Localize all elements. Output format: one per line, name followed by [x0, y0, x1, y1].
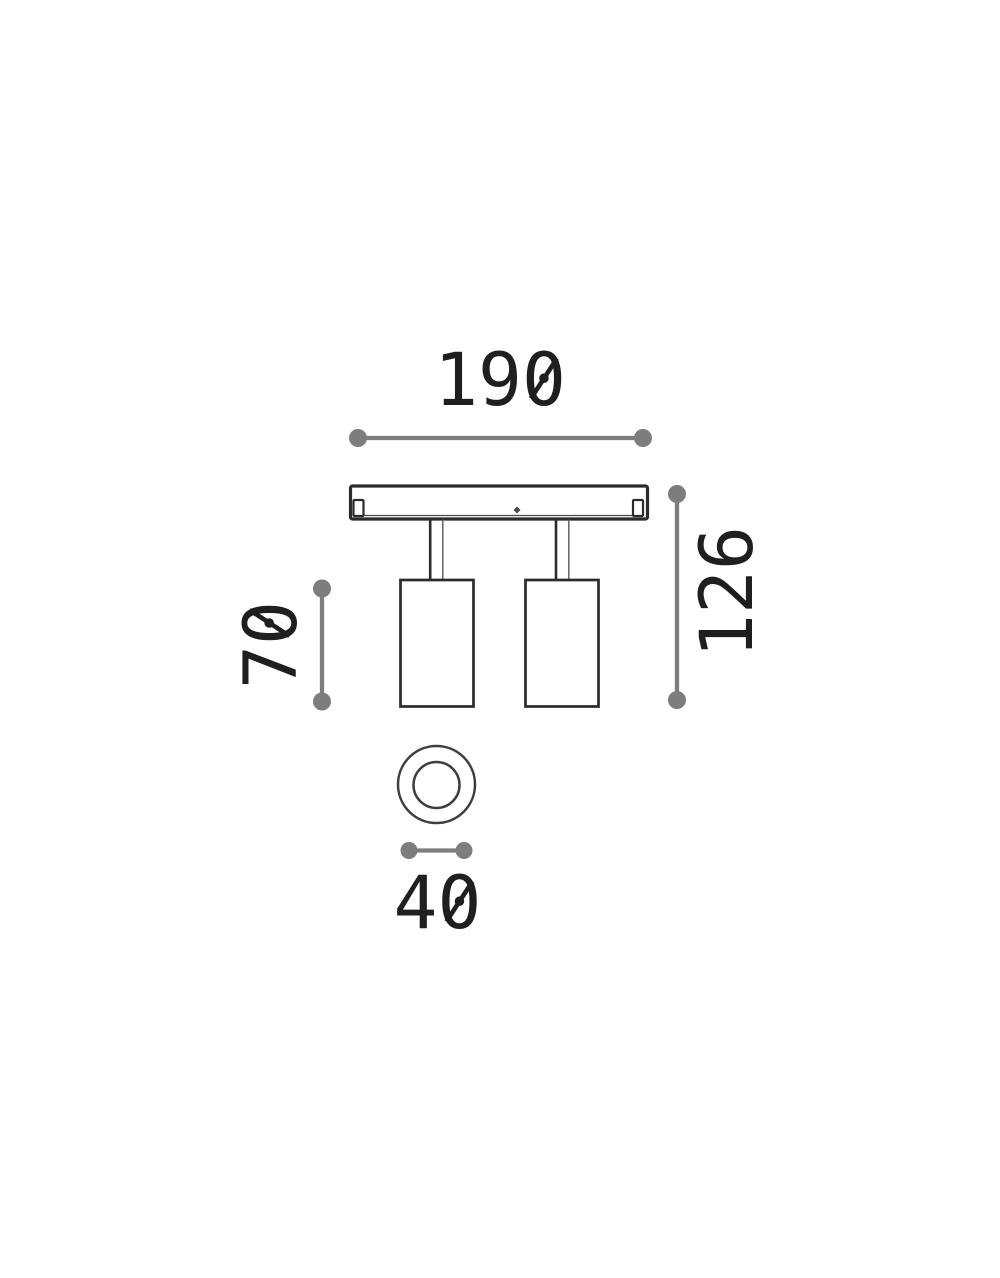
body-height-dimension-dot-top — [313, 580, 331, 598]
body-height-dimension: 70 — [229, 580, 331, 711]
width-dimension-dot-right — [634, 429, 652, 447]
canopy-left-bracket — [354, 500, 364, 516]
overall-height-dimension: 126 — [668, 485, 770, 709]
drawing-canvas: 190 — [0, 0, 1000, 1278]
head-diameter-dimension-dot-right — [456, 842, 473, 859]
canopy-bar — [351, 486, 648, 519]
body-height-dimension-dot-bottom — [313, 693, 331, 711]
fixture-front-view — [351, 486, 648, 707]
dimension-diagram: 190 — [0, 0, 1000, 1278]
body-height-label-group: 70 — [229, 601, 314, 689]
overall-height-dimension-dot-bottom — [668, 691, 686, 709]
right-spotlight-body — [526, 580, 599, 707]
left-spotlight-body — [401, 580, 474, 707]
body-height-dimension-label: 70 — [229, 601, 314, 689]
bottom-view-outer-circle — [398, 746, 475, 823]
width-dimension: 190 — [349, 338, 652, 447]
bottom-view-inner-circle — [414, 762, 460, 808]
head-diameter-dimension: 40 — [394, 842, 482, 946]
canopy-right-bracket — [633, 500, 643, 516]
head-diameter-dimension-label: 40 — [394, 861, 482, 946]
left-stem — [430, 520, 443, 581]
overall-height-dimension-dot-top — [668, 485, 686, 503]
width-dimension-label: 190 — [434, 338, 566, 423]
right-stem — [556, 520, 569, 581]
overall-height-dimension-label: 126 — [685, 526, 770, 658]
overall-height-label-group: 126 — [685, 526, 770, 658]
head-diameter-dimension-dot-left — [401, 842, 418, 859]
width-dimension-dot-left — [349, 429, 367, 447]
fixture-bottom-view — [398, 746, 475, 823]
